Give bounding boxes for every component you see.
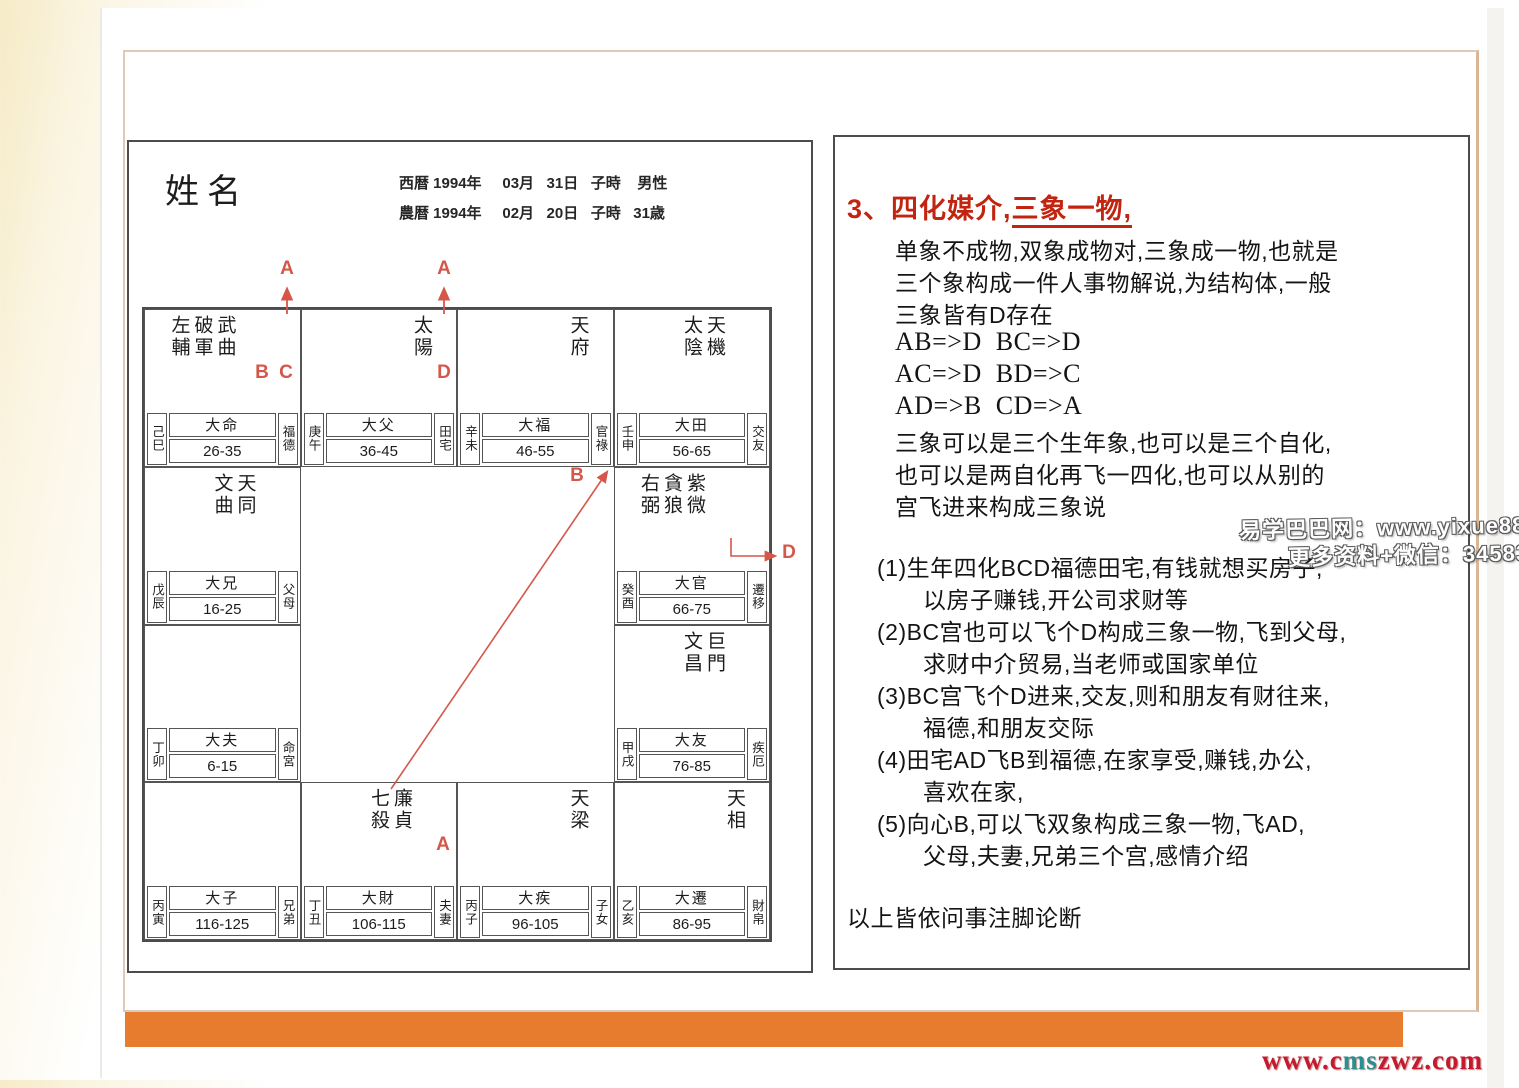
- palace-wei-strip: 辛未 大福 46-55 官祿: [460, 413, 611, 465]
- palace-xu: 文昌 巨門 甲戌 大友 76-85 疾厄: [614, 625, 771, 783]
- para1-line: 也可以是两自化再飞一四化,也可以从别的: [895, 456, 1325, 490]
- decade-palace-name: 大疾: [482, 886, 589, 910]
- palace-hai-strip: 乙亥 大遷 86-95 財帛: [617, 886, 768, 938]
- palace-xu-strip: 甲戌 大友 76-85 疾厄: [617, 728, 768, 780]
- section-number: 3、: [847, 194, 891, 224]
- palace-mao-strip: 丁卯 大夫 6-15 命宮: [147, 728, 298, 780]
- natal-palace-name: 福德: [279, 425, 297, 452]
- branch-label: 辛未: [461, 425, 479, 452]
- decade-palace-name: 大兄: [169, 571, 276, 595]
- annotation-letter-a: A: [434, 258, 454, 280]
- item-line: (5)向心B,可以飞双象构成三象一物,飞AD,: [877, 805, 1305, 839]
- star: 廉貞: [391, 788, 411, 832]
- slide-footer-bar: [125, 1012, 1403, 1047]
- branch-label: 庚午: [305, 425, 323, 452]
- natal-palace-name: 命宮: [279, 741, 297, 768]
- branch-label: 丙寅: [148, 899, 166, 926]
- decade-age-range: 106-115: [326, 912, 433, 936]
- palace-zi: 天梁 丙子 大疾 96-105 子女: [457, 782, 614, 940]
- natal-palace-name: 父母: [279, 583, 297, 610]
- url-part1: www.c: [1262, 1045, 1343, 1075]
- natal-palace-name: 兄弟: [279, 899, 297, 926]
- annotation-letter-d-elbow: D: [779, 542, 799, 564]
- annotation-letter-c: C: [276, 362, 296, 384]
- star: 武曲: [215, 315, 235, 359]
- palace-chou: 七殺 廉貞 丁丑 大財 106-115 夫妻: [301, 782, 458, 940]
- star: 天同: [235, 473, 255, 517]
- branch-label: 乙亥: [618, 899, 636, 926]
- branch-label: 丁卯: [148, 741, 166, 768]
- decade-palace-name: 大財: [326, 886, 433, 910]
- star: 紫微: [684, 473, 704, 517]
- decade-palace-name: 大友: [639, 728, 746, 752]
- branch-label: 戊辰: [148, 583, 166, 610]
- star: 巨門: [704, 631, 724, 675]
- palace-mao: 丁卯 大夫 6-15 命宮: [144, 625, 301, 783]
- palace-zi-strip: 丙子 大疾 96-105 子女: [460, 886, 611, 938]
- star: 太陰: [681, 315, 701, 359]
- star: 天機: [704, 315, 724, 359]
- natal-palace-name: 遷移: [748, 583, 766, 610]
- item-line: (3)BC宫飞个D进来,交友,则和朋友有财往来,: [877, 677, 1330, 711]
- palace-si-stars: 左輔 破軍 武曲: [169, 315, 295, 359]
- item-line-cont: 父母,夫妻,兄弟三个宫,感情介绍: [923, 837, 1249, 871]
- section-heading: 3、四化媒介,三象一物,: [847, 187, 1132, 226]
- natal-palace-name: 夫妻: [435, 899, 453, 926]
- item-line-cont: 求财中介贸易,当老师或国家单位: [923, 645, 1259, 679]
- decade-age-range: 16-25: [169, 597, 276, 621]
- palace-wu-strip: 庚午 大父 36-45 田宅: [304, 413, 455, 465]
- item-line-cont: 以房子赚钱,开公司求财等: [923, 581, 1188, 615]
- annotation-letter-b: B: [252, 362, 272, 384]
- palace-shen-strip: 壬申 大田 56-65 交友: [617, 413, 768, 465]
- lunar-date-line: 農暦 1994年 02月 20日 子時 31歳: [399, 202, 665, 223]
- branch-label: 丁丑: [305, 899, 323, 926]
- star: 左輔: [169, 315, 189, 359]
- palace-wei: 天府 辛未 大福 46-55 官祿: [457, 309, 614, 467]
- star: 破軍: [192, 315, 212, 359]
- palace-grid: 左輔 破軍 武曲 己巳 大命 26-35 福德 太陽 庚午 大父 36-45: [142, 307, 772, 942]
- decade-age-range: 6-15: [169, 754, 276, 778]
- decade-age-range: 66-75: [639, 597, 746, 621]
- decade-age-range: 56-65: [639, 439, 746, 463]
- palace-chou-strip: 丁丑 大財 106-115 夫妻: [304, 886, 455, 938]
- natal-chart-box: 姓名 西暦 1994年 03月 31日 子時 男性 農暦 1994年 02月 2…: [127, 140, 813, 973]
- decade-palace-name: 大官: [639, 571, 746, 595]
- item-line-cont: 福德,和朋友交际: [923, 709, 1094, 743]
- url-part3: zwz.com: [1378, 1045, 1483, 1075]
- decade-palace-name: 大命: [169, 413, 276, 437]
- annotation-letter-a-lianzhen: A: [433, 834, 453, 856]
- star: 文曲: [212, 473, 232, 517]
- palace-chen-strip: 戊辰 大兄 16-25 父母: [147, 571, 298, 623]
- palace-si-strip: 己巳 大命 26-35 福德: [147, 413, 298, 465]
- palace-shen: 太陰 天機 壬申 大田 56-65 交友: [614, 309, 771, 467]
- star: 天府: [568, 315, 588, 359]
- solar-date-line: 西暦 1994年 03月 31日 子時 男性: [399, 172, 667, 193]
- item-line: (4)田宅AD飞B到福德,在家享受,赚钱,办公,: [877, 741, 1312, 775]
- annotation-letter-a: A: [277, 258, 297, 280]
- heading-part2: 三象一物,: [1012, 194, 1133, 228]
- star: 天相: [724, 788, 744, 832]
- decade-palace-name: 大子: [169, 886, 276, 910]
- natal-palace-name: 子女: [592, 899, 610, 926]
- annotation-letter-b-flyline: B: [567, 465, 587, 487]
- item-line-cont: 喜欢在家,: [923, 773, 1024, 807]
- natal-palace-name: 疾厄: [748, 741, 766, 768]
- palace-chen: 文曲 天同 戊辰 大兄 16-25 父母: [144, 467, 301, 625]
- palace-hai: 天相 乙亥 大遷 86-95 財帛: [614, 782, 771, 940]
- formula-line: AC=>D BD=>C: [895, 359, 1081, 389]
- name-label: 姓名: [165, 164, 249, 213]
- decade-age-range: 96-105: [482, 912, 589, 936]
- decade-palace-name: 大父: [326, 413, 433, 437]
- palace-yin-strip: 丙寅 大子 116-125 兄弟: [147, 886, 298, 938]
- palace-wu: 太陽 庚午 大父 36-45 田宅: [301, 309, 458, 467]
- star: 貪狼: [661, 473, 681, 517]
- star: 天梁: [568, 788, 588, 832]
- natal-palace-name: 交友: [748, 425, 766, 452]
- palace-si: 左輔 破軍 武曲 己巳 大命 26-35 福德: [144, 309, 301, 467]
- decade-age-range: 76-85: [639, 754, 746, 778]
- palace-yin: 丙寅 大子 116-125 兄弟: [144, 782, 301, 940]
- natal-palace-name: 財帛: [748, 899, 766, 926]
- url-part2: ms: [1343, 1045, 1378, 1075]
- decade-age-range: 46-55: [482, 439, 589, 463]
- para1-line: 三个象构成一件人事物解说,为结构体,一般: [895, 264, 1332, 298]
- formula-line: AD=>B CD=>A: [895, 391, 1082, 421]
- palace-you-strip: 癸酉 大官 66-75 遷移: [617, 571, 768, 623]
- star: 太陽: [411, 315, 431, 359]
- branch-label: 丙子: [461, 899, 479, 926]
- decade-palace-name: 大福: [482, 413, 589, 437]
- decade-palace-name: 大田: [639, 413, 746, 437]
- palace-you: 右弼 貪狼 紫微 癸酉 大官 66-75 遷移: [614, 467, 771, 625]
- decade-palace-name: 大夫: [169, 728, 276, 752]
- star: 七殺: [368, 788, 388, 832]
- branch-label: 甲戌: [618, 741, 636, 768]
- decade-age-range: 36-45: [326, 439, 433, 463]
- watermark-wechat: 更多资料+微信：3458344044: [1288, 534, 1519, 572]
- decade-age-range: 86-95: [639, 912, 746, 936]
- closing-note: 以上皆依问事注脚论断: [847, 899, 1082, 933]
- item-line: (2)BC宫也可以飞个D构成三象一物,飞到父母,: [877, 613, 1346, 647]
- formula-line: AB=>D BC=>D: [895, 327, 1081, 357]
- annotation-letter-d: D: [434, 362, 454, 384]
- branch-label: 己巳: [148, 425, 166, 452]
- footer-site-url: www.cmszwz.com: [1262, 1045, 1483, 1076]
- star: 文昌: [681, 631, 701, 675]
- natal-palace-name: 田宅: [435, 425, 453, 452]
- para1-line: 宫飞进来构成三象说: [895, 488, 1107, 522]
- star: 右弼: [638, 473, 658, 517]
- branch-label: 癸酉: [618, 583, 636, 610]
- para1-line: 三象皆有D存在: [895, 296, 1053, 330]
- decade-age-range: 116-125: [169, 912, 276, 936]
- decade-age-range: 26-35: [169, 439, 276, 463]
- natal-palace-name: 官祿: [592, 425, 610, 452]
- decade-palace-name: 大遷: [639, 886, 746, 910]
- item-line: (1)生年四化BCD福德田宅,有钱就想买房子,: [877, 549, 1323, 583]
- para1-line: 单象不成物,双象成物对,三象成一物,也就是: [895, 232, 1339, 266]
- heading-part1: 四化媒介,: [891, 194, 1012, 224]
- para1-line: 三象可以是三个生年象,也可以是三个自化,: [895, 424, 1332, 458]
- branch-label: 壬申: [618, 425, 636, 452]
